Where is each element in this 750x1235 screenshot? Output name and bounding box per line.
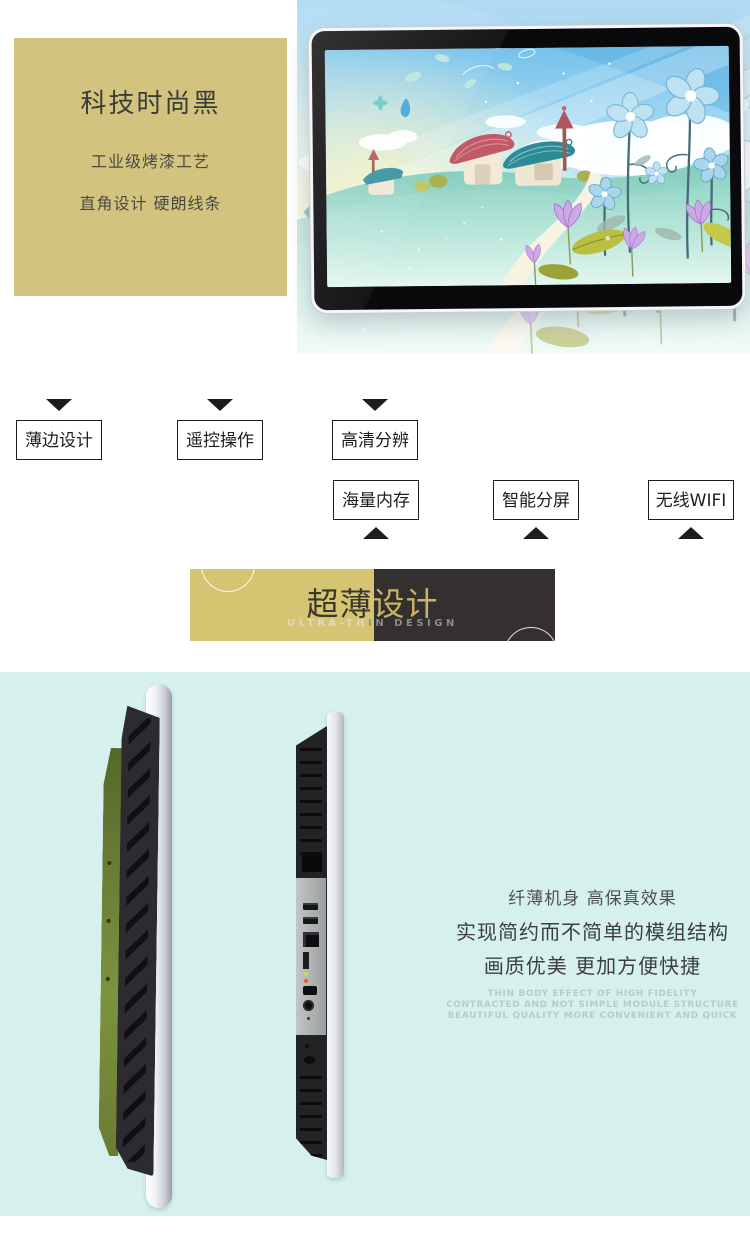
power-jack	[303, 1000, 314, 1011]
down-arrow-icon	[207, 399, 233, 411]
slim-english-line-1: THIN BODY EFFECT OF HIGH FIDELITY	[420, 989, 750, 1000]
feature-box-remote-control: 遥控操作	[177, 420, 263, 460]
left-device-vent-module	[115, 706, 160, 1176]
tablet-front-view	[309, 24, 746, 314]
connector-cutout	[302, 855, 322, 872]
slim-body-section: 纤薄机身 高保真效果 实现简约而不简单的模组结构 画质优美 更加方便快捷 THI…	[0, 672, 750, 1216]
slim-line-2: 实现简约而不简单的模组结构	[420, 916, 750, 945]
hdmi-port	[303, 986, 317, 995]
feature-box-hd-resolution: 高清分辨	[332, 420, 418, 460]
feature-box-smart-split-screen: 智能分屏	[493, 480, 579, 520]
screw-hole	[305, 1044, 309, 1048]
banner-subtitle: ULTRA-THIN DESIGN	[190, 618, 555, 629]
down-arrow-icon	[46, 399, 72, 411]
slim-text-block: 纤薄机身 高保真效果 实现简约而不简单的模组结构 画质优美 更加方便快捷 THI…	[420, 884, 750, 1022]
slim-line-1: 纤薄机身 高保真效果	[420, 884, 750, 909]
vent-slots-bottom	[300, 1076, 322, 1162]
up-arrow-icon	[363, 527, 389, 539]
device-side-view-straight	[294, 710, 344, 1180]
hero-subtitle-2: 直角设计 硬朗线条	[14, 190, 287, 214]
hero-title: 科技时尚黑	[14, 83, 287, 120]
usb-port-2	[303, 917, 318, 924]
usb-port-1	[303, 903, 318, 910]
down-arrow-icon	[362, 399, 388, 411]
up-arrow-icon	[678, 527, 704, 539]
sd-card-slot	[303, 952, 309, 969]
ultra-thin-banner: 超薄设计 ULTRA-THIN DESIGN	[190, 569, 555, 641]
feature-box-thin-edge: 薄边设计	[16, 420, 102, 460]
slim-line-3: 画质优美 更加方便快捷	[420, 950, 750, 979]
right-device-front-bezel	[327, 712, 344, 1178]
device-side-view-angled	[98, 684, 178, 1209]
product-detail-page: 科技时尚黑 工业级烤漆工艺 直角设计 硬朗线条 薄边设计 遥控操作 高清分辨 海…	[0, 0, 750, 1235]
vent-slots-top	[300, 748, 322, 860]
slim-english-line-3: BEAUTIFUL QUALITY MORE CONVENIENT AND QU…	[420, 1011, 750, 1022]
feature-box-large-memory: 海量内存	[333, 480, 419, 520]
hero-color-panel: 科技时尚黑 工业级烤漆工艺 直角设计 硬朗线条	[14, 38, 287, 296]
reset-pinhole	[307, 1017, 310, 1020]
feature-box-wireless-wifi: 无线WIFI	[648, 480, 734, 520]
tablet-screen	[325, 46, 731, 287]
ethernet-port	[303, 932, 319, 947]
hero-subtitle-1: 工业级烤漆工艺	[14, 148, 287, 172]
led-indicator-red	[304, 979, 308, 983]
right-device-io-panel	[296, 878, 326, 1035]
mount-hole	[304, 1056, 315, 1064]
cartoon-screen-illustration	[325, 46, 731, 287]
up-arrow-icon	[523, 527, 549, 539]
slim-english-line-2: CONTRACTED AND NOT SIMPLE MODULE STRUCTU…	[420, 1000, 750, 1011]
led-indicator-green	[304, 972, 308, 976]
